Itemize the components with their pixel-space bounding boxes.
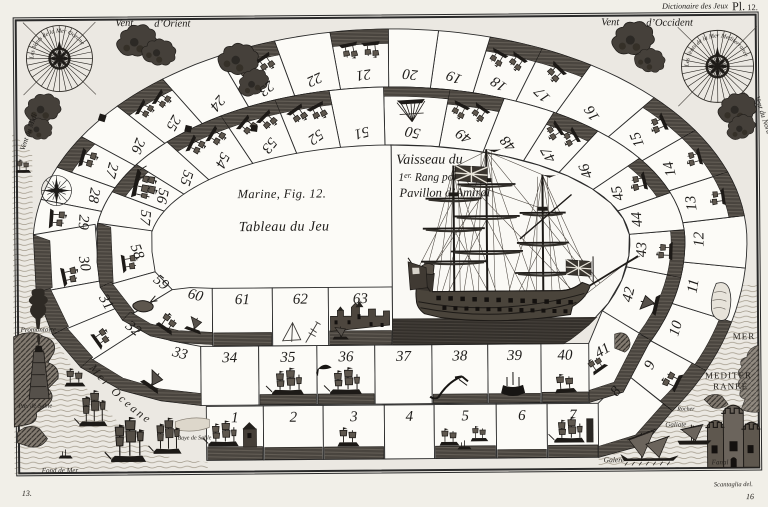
- svg-text:RANEÉ: RANEÉ: [713, 381, 748, 391]
- svg-text:13: 13: [683, 195, 701, 212]
- svg-text:Fanal: Fanal: [711, 458, 729, 466]
- svg-text:37: 37: [395, 349, 413, 365]
- svg-text:Vent: Vent: [115, 18, 134, 29]
- svg-text:Pte. de Sable: Pte. de Sable: [17, 403, 52, 410]
- svg-text:44: 44: [629, 211, 646, 228]
- svg-text:11: 11: [685, 278, 703, 294]
- svg-text:Dictionaire des Jeux: Dictionaire des Jeux: [661, 1, 728, 11]
- svg-text:1: 1: [231, 410, 239, 426]
- svg-text:29: 29: [75, 214, 92, 230]
- svg-text:MER: MER: [733, 331, 756, 341]
- svg-text:d’Occident: d’Occident: [646, 18, 694, 29]
- svg-text:39: 39: [506, 348, 523, 364]
- svg-text:35: 35: [279, 350, 296, 366]
- svg-text:5: 5: [461, 408, 469, 424]
- svg-text:38: 38: [451, 348, 468, 364]
- svg-text:Galiote: Galiote: [665, 421, 686, 429]
- svg-text:36: 36: [337, 349, 354, 365]
- svg-text:43: 43: [634, 242, 650, 257]
- svg-text:Baye de Sable: Baye de Sable: [177, 435, 211, 441]
- svg-text:3: 3: [349, 409, 358, 425]
- svg-text:21: 21: [355, 65, 372, 83]
- svg-text:Rocher: Rocher: [676, 407, 695, 413]
- svg-text:16: 16: [746, 492, 754, 501]
- svg-text:13.: 13.: [22, 489, 32, 498]
- svg-text:63: 63: [353, 291, 368, 307]
- svg-text:20: 20: [401, 65, 418, 83]
- svg-text:d’Orient: d’Orient: [154, 19, 191, 30]
- svg-text:2: 2: [289, 410, 297, 426]
- svg-text:Pl. 12.: Pl. 12.: [732, 0, 758, 13]
- svg-text:MEDITER: MEDITER: [705, 370, 752, 380]
- svg-text:12: 12: [691, 231, 707, 247]
- svg-text:Vent: Vent: [601, 17, 620, 28]
- svg-text:Scantaglia del.: Scantaglia del.: [714, 481, 753, 488]
- svg-text:Fond de Mer: Fond de Mer: [41, 466, 79, 474]
- svg-text:61: 61: [235, 292, 250, 308]
- svg-text:Tableau du Jeu: Tableau du Jeu: [239, 219, 330, 235]
- svg-text:34: 34: [221, 350, 238, 366]
- svg-text:40: 40: [557, 348, 573, 364]
- svg-text:62: 62: [293, 292, 309, 308]
- svg-text:Marine, Fig. 12.: Marine, Fig. 12.: [236, 186, 326, 201]
- svg-text:6: 6: [518, 408, 526, 424]
- svg-text:Galere: Galere: [604, 455, 625, 464]
- svg-text:Promontoire: Promontoire: [20, 326, 56, 334]
- svg-text:4: 4: [405, 409, 413, 425]
